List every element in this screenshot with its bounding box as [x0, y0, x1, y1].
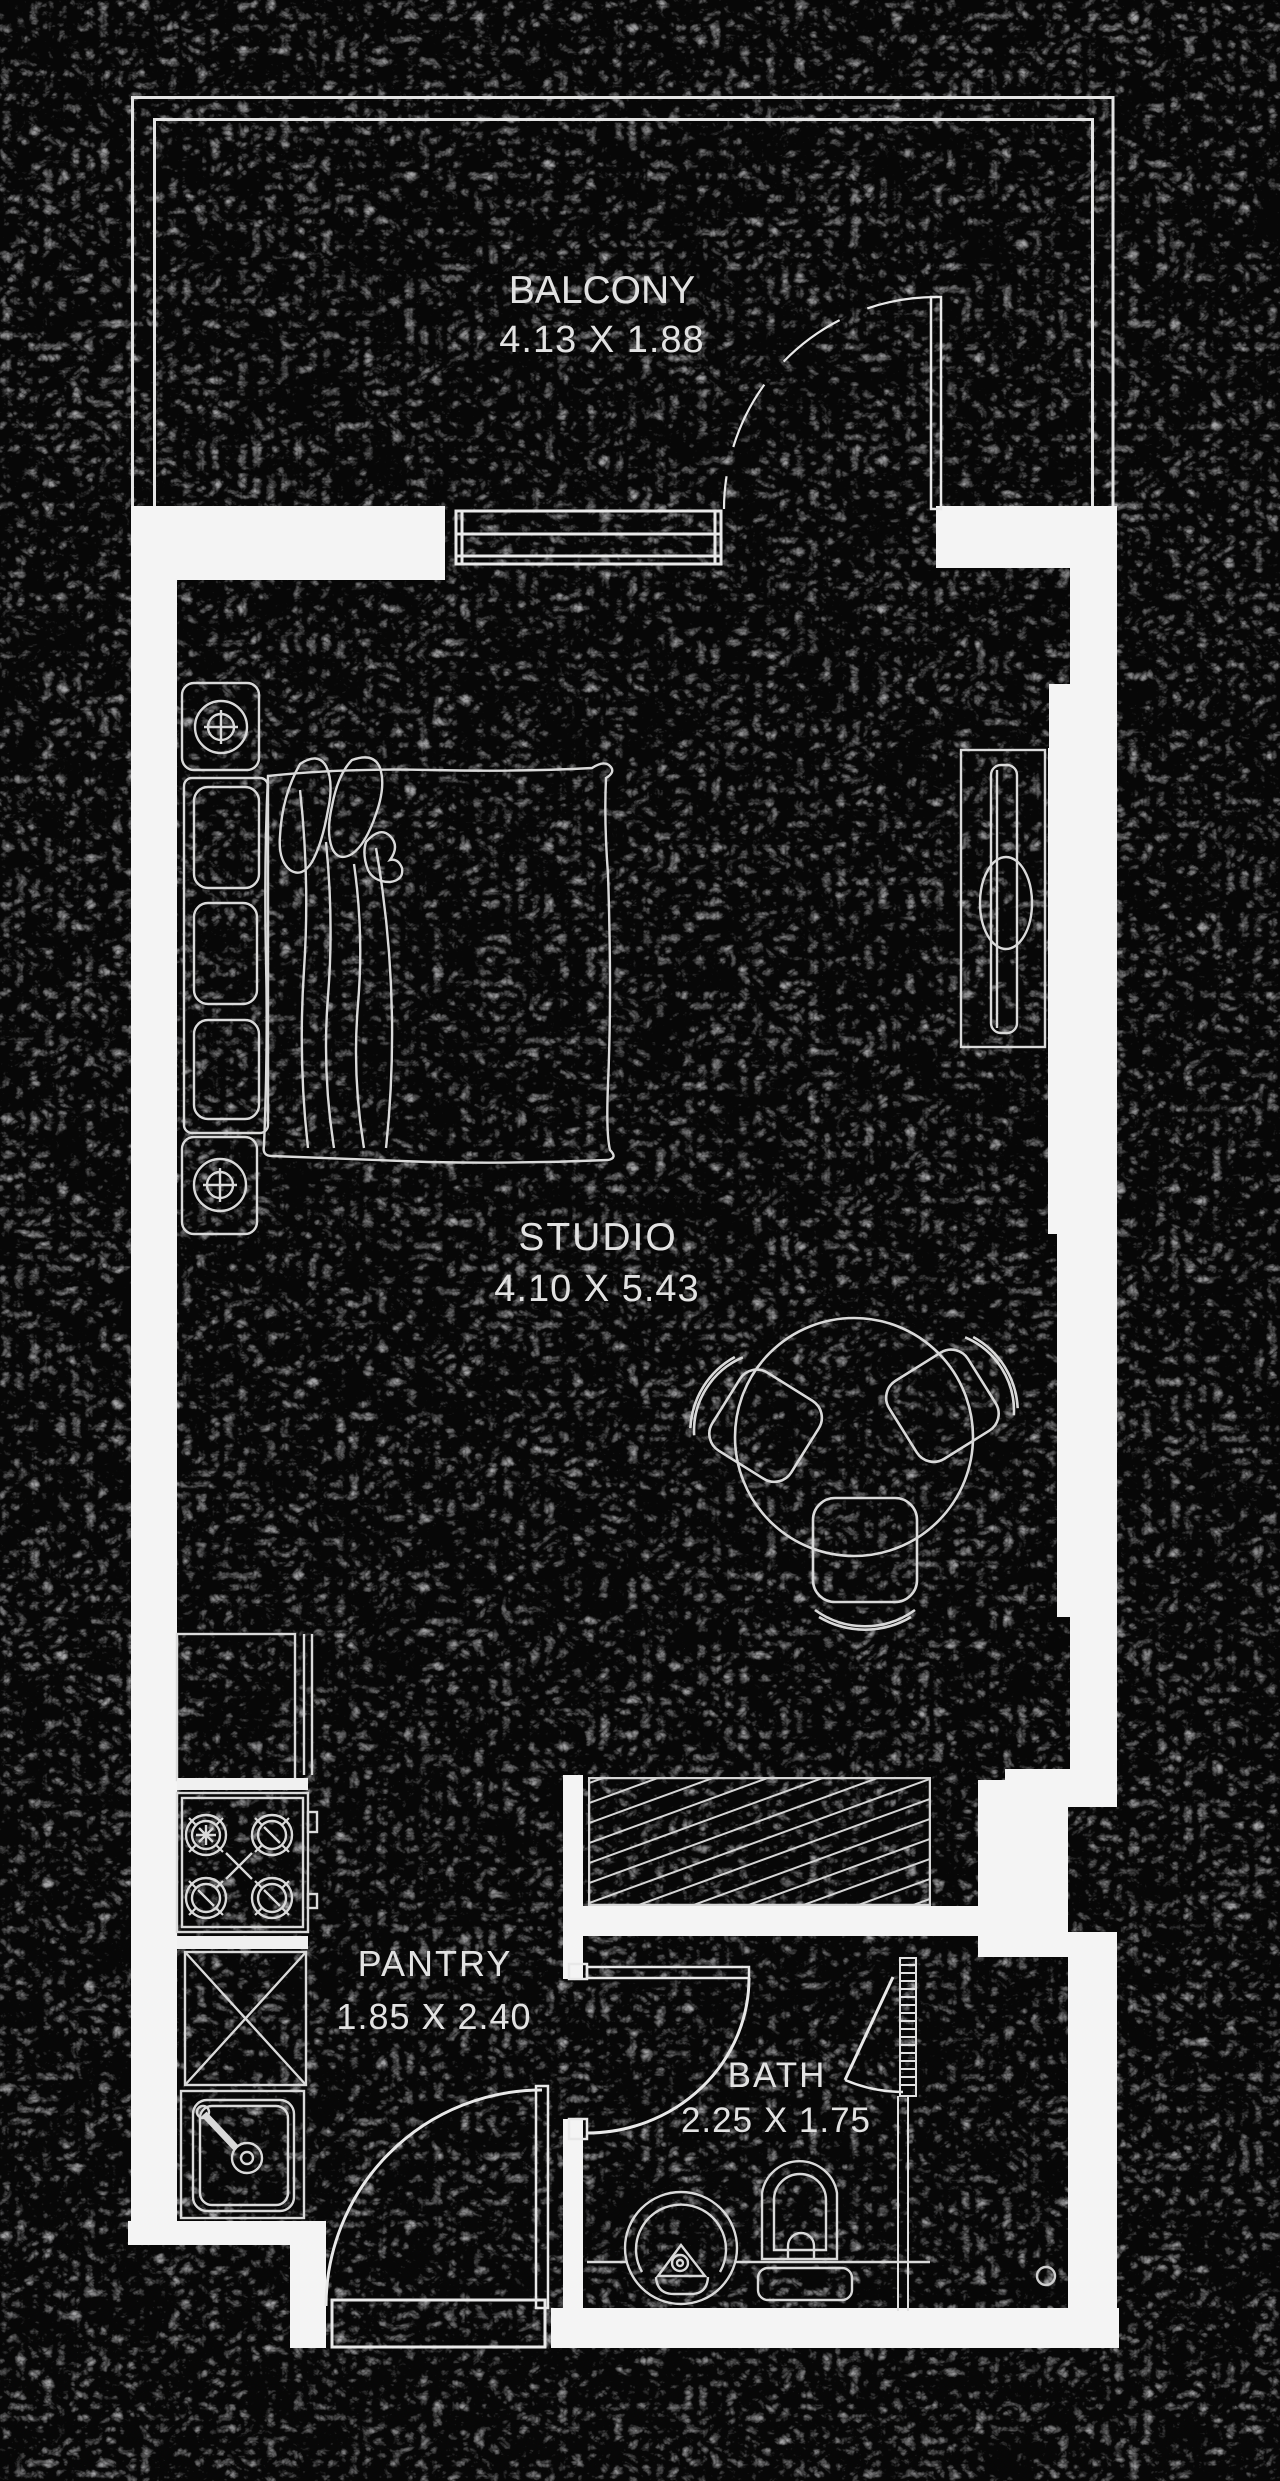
svg-text:PANTRY: PANTRY: [358, 1943, 513, 1984]
svg-text:4.10 X 5.43: 4.10 X 5.43: [494, 1268, 699, 1310]
svg-text:BATH: BATH: [728, 2056, 827, 2095]
svg-text:2.25 X 1.75: 2.25 X 1.75: [681, 2101, 871, 2140]
svg-text:1.85 X 2.40: 1.85 X 2.40: [336, 1996, 531, 2037]
svg-text:STUDIO: STUDIO: [518, 1216, 677, 1259]
svg-text:BALCONY: BALCONY: [509, 269, 695, 312]
svg-text:4.13 X 1.88: 4.13 X 1.88: [499, 319, 704, 361]
